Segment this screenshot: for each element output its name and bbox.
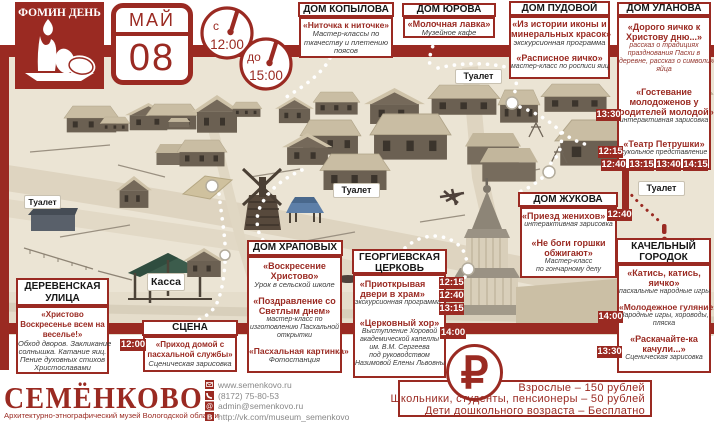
svg-text:B: B — [207, 413, 213, 422]
svg-text:15:00: 15:00 — [249, 68, 283, 83]
svg-text:12:00: 12:00 — [210, 37, 244, 52]
svg-text:с: с — [213, 19, 219, 33]
svg-text:@: @ — [206, 404, 213, 411]
svg-text:до: до — [247, 50, 261, 64]
